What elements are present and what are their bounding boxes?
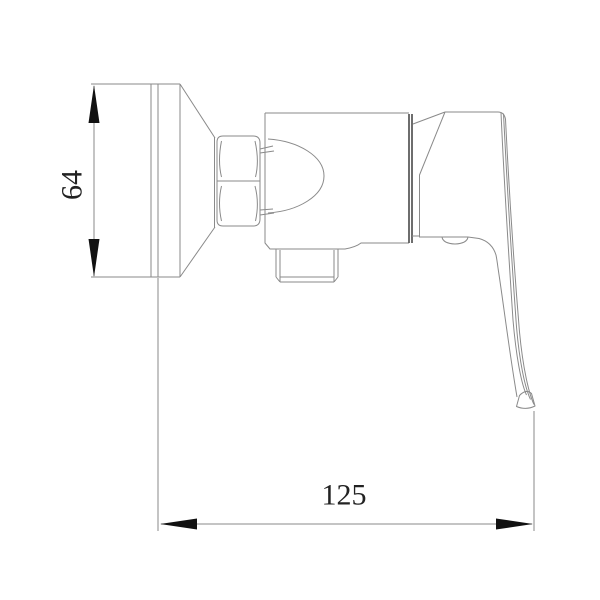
wall-flange bbox=[151, 84, 215, 277]
lever-right-edges bbox=[501, 113, 534, 405]
dim-height-arrow-up bbox=[89, 85, 100, 123]
dimension-height: 64 bbox=[56, 84, 152, 277]
cartridge-dome bbox=[268, 139, 324, 213]
dimension-depth: 125 bbox=[158, 278, 534, 531]
shower-mixer-drawing: 64 125 bbox=[0, 0, 600, 600]
body-handle-seam bbox=[409, 114, 412, 243]
lever-handle bbox=[498, 113, 535, 409]
body-outline bbox=[265, 113, 409, 249]
nut-body-connectors bbox=[260, 146, 274, 215]
dim-height-extension-lines bbox=[91, 84, 151, 277]
dim-depth-value: 125 bbox=[322, 479, 367, 512]
dim-depth-arrow-left bbox=[160, 519, 197, 530]
dim-height-value: 64 bbox=[56, 170, 89, 200]
flange-plate bbox=[151, 84, 180, 277]
cap-outline bbox=[412, 112, 506, 237]
cap-pivot-bump bbox=[442, 237, 468, 244]
cap-to-lever-curve bbox=[468, 237, 498, 268]
dim-height-arrow-down bbox=[89, 239, 100, 277]
flange-cone bbox=[180, 84, 215, 277]
outlet-outline bbox=[276, 249, 338, 282]
technical-drawing-canvas: 64 125 bbox=[0, 0, 600, 600]
dim-depth-arrow-right bbox=[496, 519, 533, 530]
valve-body bbox=[265, 113, 412, 249]
outlet-port bbox=[276, 249, 338, 282]
handle-cap bbox=[412, 112, 506, 268]
